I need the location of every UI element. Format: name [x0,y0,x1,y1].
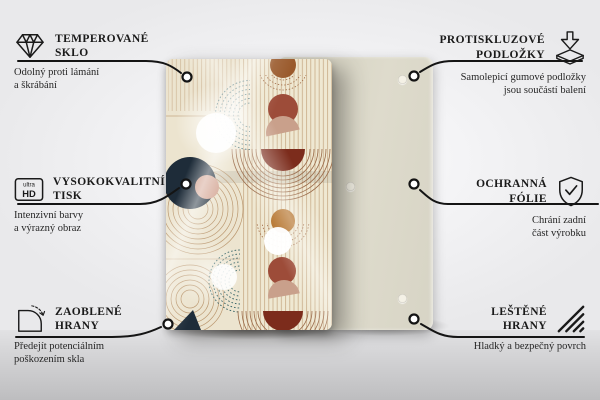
svg-text:ultra: ultra [23,181,35,188]
feature-protective-film: OCHRANNÁ FÓLIE Chrání zadní část výrobku [391,175,586,240]
ultra-hd-icon: ultra HD [14,177,44,202]
board-front-side [166,59,332,330]
feature-anti-slip-pads: PROTISKLUZOVÉ PODLOŽKY Samolepicí gumové… [391,30,586,97]
rubber-pad [346,182,355,191]
rounded-corner-icon [14,304,46,334]
feature-title: PROTISKLUZOVÉ PODLOŽKY [391,33,545,61]
feature-tempered-glass: TEMPEROVANÉ SKLO Odolný proti lámání a š… [14,32,179,92]
feature-subtitle: Samolepicí gumové podložky jsou součástí… [391,72,586,97]
feature-title: TEMPEROVANÉ SKLO [55,32,179,60]
feature-subtitle: Odolný proti lámání a škrábání [14,67,179,92]
feature-subtitle: Chrání zadní část výrobku [391,215,586,240]
feature-title: ZAOBLENÉ HRANY [55,305,179,333]
feature-high-quality-print: ultra HD VYSOKOKVALITNÍ TISK Intenzivní … [14,175,179,235]
feature-subtitle: Intenzivní barvy a výrazný obraz [14,210,179,235]
product-infographic: TEMPEROVANÉ SKLO Odolný proti lámání a š… [0,0,600,400]
boho-print [166,59,332,330]
feature-title: VYSOKOKVALITNÍ TISK [53,175,179,203]
feature-polished-edges: LEŠTĚNÉ HRANY Hladký a bezpečný povrch [391,304,586,354]
feature-subtitle: Předejít potenciálním poškozením skla [14,341,179,366]
anti-slip-pads-icon [554,30,586,65]
feature-subtitle: Hladký a bezpečný povrch [391,341,586,354]
diamond-icon [14,32,46,60]
polished-edges-icon [556,304,586,334]
feature-title: LEŠTĚNÉ HRANY [391,305,547,333]
svg-text:HD: HD [22,189,36,199]
feature-title: OCHRANNÁ FÓLIE [391,177,547,205]
shield-check-icon [556,175,586,208]
feature-rounded-edges: ZAOBLENÉ HRANY Předejít potenciálním poš… [14,304,179,366]
rubber-pad [398,294,407,303]
